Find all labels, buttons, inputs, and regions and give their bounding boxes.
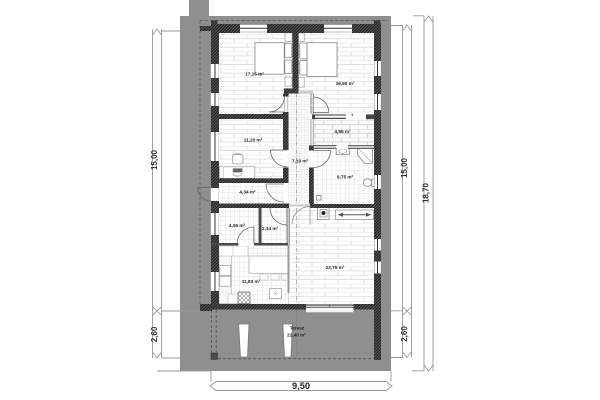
svg-text:2,60: 2,60 [150,326,159,342]
svg-text:15,00: 15,00 [150,149,159,170]
svg-text:18,70: 18,70 [422,182,431,203]
svg-text:7,10 m²: 7,10 m² [292,159,309,164]
svg-text:4,34 m²: 4,34 m² [239,190,256,195]
svg-text:16,90 m²: 16,90 m² [336,81,355,86]
svg-text:Terasz: Terasz [290,326,305,331]
svg-text:×: × [274,292,277,298]
svg-text:2,60: 2,60 [400,326,409,342]
svg-text:22,75 m²: 22,75 m² [326,265,345,270]
svg-text:9,75 m²: 9,75 m² [337,175,354,180]
svg-text:9,50: 9,50 [292,381,310,391]
svg-text:4,05 m²: 4,05 m² [229,223,246,228]
svg-text:11,83 m²: 11,83 m² [242,279,261,284]
svg-text:22,40 m²: 22,40 m² [287,333,306,338]
svg-text:4,55 m²: 4,55 m² [334,129,351,134]
svg-text:11,20 m²: 11,20 m² [244,138,263,143]
svg-text:15,00: 15,00 [400,157,409,178]
svg-text:2,34 m²: 2,34 m² [262,226,279,231]
svg-text:17,15 m²: 17,15 m² [245,72,264,77]
